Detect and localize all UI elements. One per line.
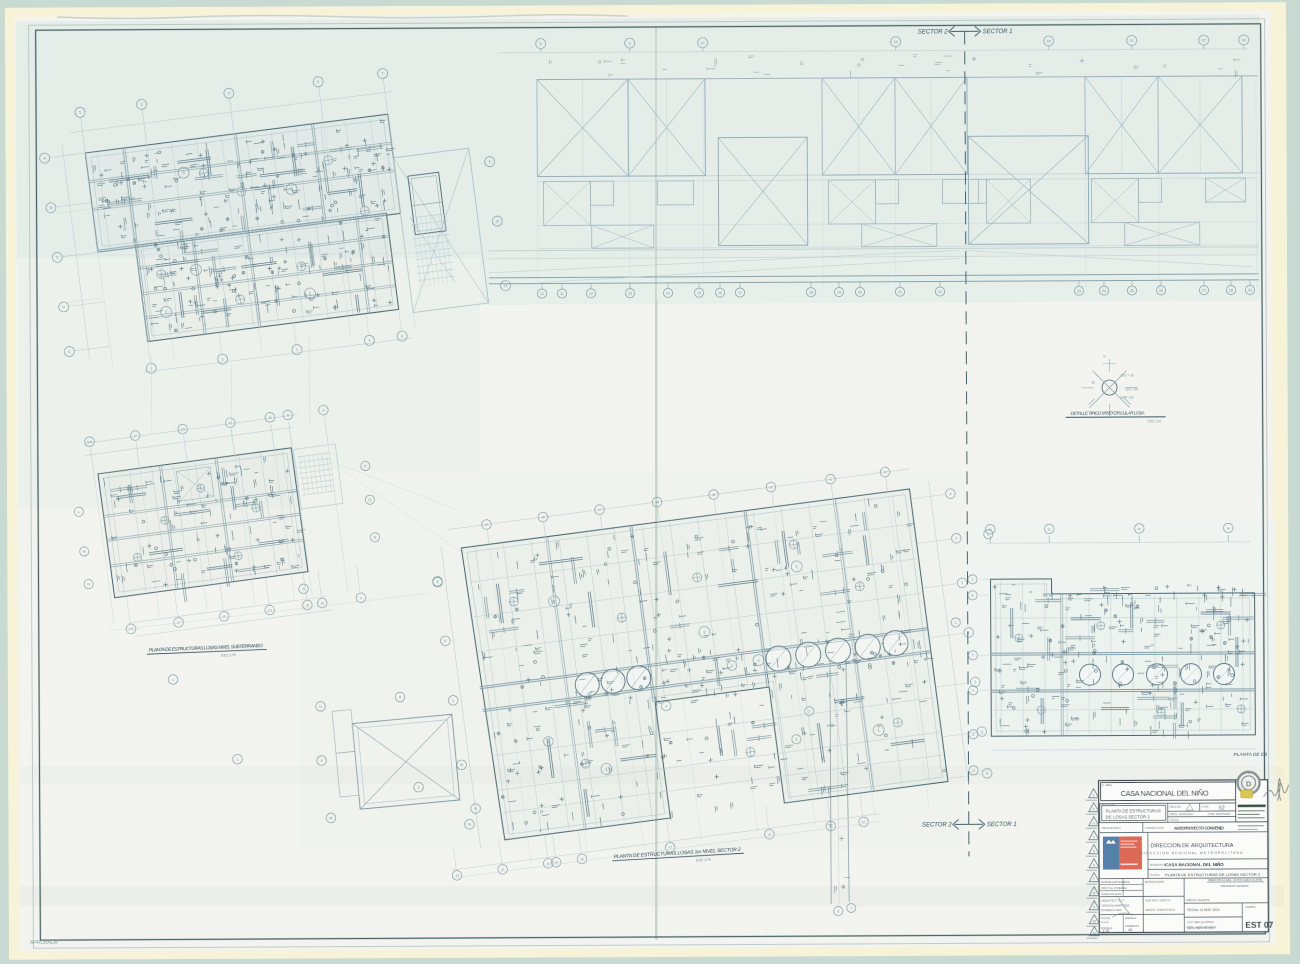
svg-text:10: 10: [495, 219, 499, 223]
svg-text:COM.: COM.: [1202, 805, 1210, 809]
svg-text:DIRECCION LIC.ENC. VICTOR CER: DIRECCION LIC.ENC. VICTOR CERDA AGUIRRE: [1208, 879, 1263, 882]
svg-text:18: 18: [809, 290, 813, 294]
svg-text:8: 8: [399, 695, 401, 699]
svg-text:ESC 1:75: ESC 1:75: [696, 858, 711, 863]
svg-text:25: 25: [1130, 289, 1134, 293]
svg-text:PLANTA DE ES: PLANTA DE ES: [1233, 752, 1268, 758]
svg-text:27: 27: [1202, 38, 1206, 42]
svg-text:9: 9: [474, 807, 476, 811]
svg-text:RODRIGO LIRA: RODRIGO LIRA: [1101, 908, 1122, 912]
svg-text:12: 12: [589, 292, 593, 296]
svg-text:6: 6: [837, 909, 839, 913]
svg-text:APROBADA: APROBADA: [29, 940, 58, 946]
svg-text:13: 13: [628, 291, 632, 295]
svg-text:30: 30: [1091, 381, 1095, 385]
svg-text:64: 64: [1138, 527, 1142, 531]
svg-text:21: 21: [1130, 39, 1134, 43]
svg-text:11: 11: [560, 292, 564, 296]
svg-text:16: 16: [718, 291, 722, 295]
svg-text:DETALLE TIPICO VANO CIRCULAR L: DETALLE TIPICO VANO CIRCULAR LOSA: [1071, 410, 1145, 415]
svg-text:DIBUJO VIGENTE: DIBUJO VIGENTE: [1186, 898, 1209, 902]
svg-text:ARQTO. CIENN P.VD.D: ARQTO. CIENN P.VD.D: [1145, 908, 1175, 912]
svg-text:PROV. SANTIAGO: PROV. SANTIAGO: [1170, 812, 1195, 816]
svg-text:10: 10: [1093, 919, 1097, 923]
svg-text:LAMINA: LAMINA: [1245, 905, 1256, 909]
svg-text:ESC 1:10: ESC 1:10: [1148, 419, 1162, 423]
svg-text:CORRECCION: CORRECCION: [1145, 826, 1164, 830]
svg-text:PROY.No VIVIENDA: PROY.No VIVIENDA: [1101, 886, 1127, 890]
svg-text:1: 1: [172, 678, 174, 682]
svg-text:11: 11: [503, 284, 507, 288]
svg-text:27: 27: [1202, 288, 1206, 292]
svg-text:N. OBRA: N. OBRA: [1102, 783, 1113, 787]
svg-text:U: U: [972, 769, 975, 773]
svg-text:19: 19: [837, 290, 841, 294]
svg-text:COM. SANTIAGO: COM. SANTIAGO: [1208, 812, 1231, 816]
svg-text:21: 21: [898, 290, 902, 294]
svg-text:4: 4: [665, 704, 667, 708]
svg-text:PLANO:: PLANO:: [1150, 873, 1161, 877]
svg-text:22: 22: [938, 290, 942, 294]
svg-text:N.1-2: N.1-2: [1101, 920, 1108, 924]
svg-text:61: 61: [1048, 527, 1052, 531]
svg-text:ESTRUCTURA: ESTRUCTURA: [1145, 880, 1164, 884]
svg-text:CALLE: CALLE: [1170, 818, 1179, 822]
svg-text:12: 12: [701, 41, 705, 45]
svg-text:CRISTIAN MARTINEZ: CRISTIAN MARTINEZ: [1101, 903, 1129, 907]
svg-text:ANTEPROYECTO CONVENIO: ANTEPROYECTO CONVENIO: [1174, 825, 1225, 830]
svg-text:M: M: [460, 763, 463, 767]
svg-text:CUT. REG.No 555/11: CUT. REG.No 555/11: [1187, 920, 1214, 924]
svg-text:15: 15: [697, 291, 701, 295]
svg-text:ESCALA: ESCALA: [1125, 916, 1136, 920]
svg-text:M: M: [83, 550, 87, 554]
svg-text:REGION: REGION: [1170, 805, 1181, 809]
svg-text:DIRECCION REGIONAL METROPOLITA: DIRECCION REGIONAL METROPOLITANA: [1140, 851, 1243, 856]
svg-text:FECHA: 11 NOV. 2010: FECHA: 11 NOV. 2010: [1187, 908, 1219, 912]
svg-text:14: 14: [666, 291, 670, 295]
svg-text:PLANTA DE ESTRUCTURAS: PLANTA DE ESTRUCTURAS: [1106, 808, 1161, 813]
svg-text:A0: A0: [1128, 928, 1132, 932]
svg-text:18: 18: [1047, 39, 1051, 43]
svg-text:62: 62: [1219, 805, 1225, 811]
svg-text:6: 6: [303, 587, 305, 591]
svg-text:SECTOR 1: SECTOR 1: [987, 822, 1017, 828]
svg-text:SECTOR 1: SECTOR 1: [983, 29, 1013, 35]
svg-text:DIRECCION DE ARQUITECTURA: DIRECCION DE ARQUITECTURA: [1150, 843, 1233, 849]
svg-text:11: 11: [1093, 931, 1096, 935]
svg-text:ARCH. REG.No 45/12: ARCH. REG.No 45/12: [1187, 926, 1215, 930]
svg-text:29: 29: [1248, 288, 1252, 292]
svg-text:7: 7: [850, 906, 852, 910]
svg-text:EST 07: EST 07: [1245, 920, 1273, 930]
svg-text:ESC 1:75: ESC 1:75: [221, 653, 236, 658]
svg-text:24: 24: [1102, 289, 1106, 293]
svg-text:D/2 + 30: D/2 + 30: [1126, 387, 1138, 391]
svg-text:PROPIETARIO: PROPIETARIO: [1102, 826, 1122, 830]
svg-text:1: 1: [955, 621, 957, 625]
svg-text:CHK ING.T SUP VC: CHK ING.T SUP VC: [1145, 898, 1170, 902]
svg-text:26: 26: [1159, 289, 1163, 293]
svg-text:28: 28: [1229, 288, 1233, 292]
svg-text:20: 20: [858, 290, 862, 294]
svg-text:EMP. L/D: EMP. L/D: [1121, 395, 1135, 399]
svg-text:NORMA ANTISISMICA: NORMA ANTISISMICA: [1101, 880, 1130, 884]
svg-text:15: 15: [894, 40, 898, 44]
svg-text:CATALOG ALTA: CATALOG ALTA: [1101, 892, 1121, 896]
svg-text:47e: 47e: [128, 627, 134, 632]
svg-text:CASA NACIONAL DEL NIÑO: CASA NACIONAL DEL NIÑO: [1121, 789, 1209, 798]
svg-text:CASA NACIONAL DEL NIÑO: CASA NACIONAL DEL NIÑO: [1165, 862, 1224, 867]
svg-text:47a: 47a: [267, 608, 273, 613]
svg-text:1: 1: [236, 757, 238, 761]
svg-text:VISITADOR GENERAL: VISITADOR GENERAL: [1220, 884, 1249, 888]
svg-text:J: J: [972, 578, 974, 582]
svg-text:47b: 47b: [180, 427, 186, 432]
svg-text:SECTOR 2: SECTOR 2: [922, 822, 953, 828]
svg-text:PLANTA DE ESTRUCTURAS DE LOSAS: PLANTA DE ESTRUCTURAS DE LOSAS SECTOR 2: [1165, 872, 1261, 878]
svg-text:D: D: [1246, 779, 1252, 788]
svg-text:17: 17: [738, 291, 742, 295]
svg-text:6: 6: [540, 42, 542, 46]
svg-text:1:75: 1:75: [1102, 929, 1109, 933]
svg-text:30: 30: [1242, 38, 1246, 42]
svg-text:23: 23: [1077, 289, 1081, 293]
svg-text:UBICACION: UBICACION: [1101, 803, 1116, 807]
svg-text:D/2 + 30: D/2 + 30: [1121, 373, 1133, 377]
svg-text:2: 2: [987, 533, 989, 537]
svg-text:66: 66: [1227, 526, 1231, 530]
svg-text:SECTOR 2: SECTOR 2: [918, 29, 949, 35]
svg-text:3: 3: [418, 786, 420, 790]
svg-text:DE LOSAS SECTOR 2: DE LOSAS SECTOR 2: [1106, 814, 1151, 819]
svg-text:47d: 47d: [87, 440, 93, 445]
svg-text:9: 9: [629, 41, 631, 45]
svg-text:10: 10: [540, 292, 544, 296]
